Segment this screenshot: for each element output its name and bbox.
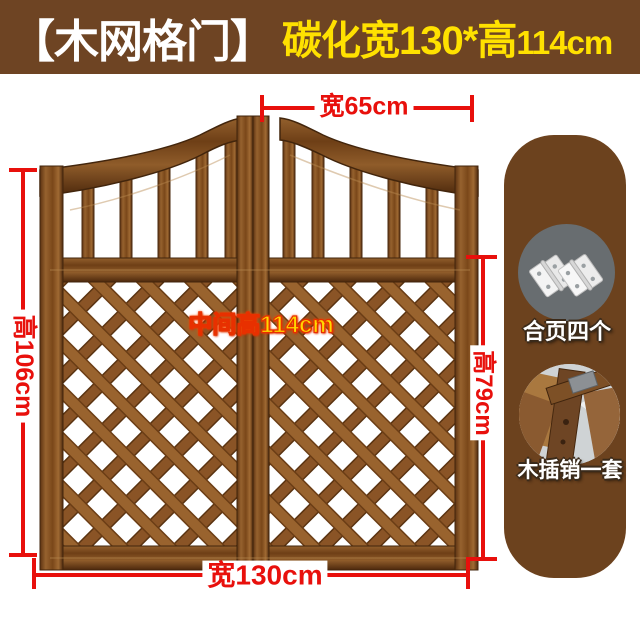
product-poster: 【木网格门】 碳化宽130*高114cm	[0, 0, 640, 640]
latch-photo-circle	[519, 364, 620, 465]
dimension-label-right-height: 高79cm	[470, 345, 496, 440]
banner: 【木网格门】 碳化宽130*高114cm	[0, 0, 640, 74]
banner-title: 【木网格门】	[10, 5, 274, 70]
latch-label: 木插销一套	[518, 454, 623, 484]
dimension-cap	[466, 557, 497, 561]
hinges-label: 合页四个	[523, 314, 611, 346]
dimension-label-center-height: 中间高114cm	[188, 305, 333, 340]
dimension-cap	[32, 558, 36, 589]
accessories-panel	[504, 135, 626, 578]
hinges-icon	[518, 224, 615, 321]
dimension-cap	[260, 95, 264, 122]
banner-subtitle-size: 114cm	[516, 24, 612, 61]
dimension-label-door-width: 宽65cm	[315, 93, 414, 121]
gate-center-post	[237, 116, 269, 570]
banner-subtitle-main: 碳化宽130*高	[282, 19, 516, 63]
hinges-photo-circle	[518, 224, 615, 321]
dimension-cap	[466, 255, 497, 259]
gate-product-photo	[30, 110, 492, 578]
banner-subtitle: 碳化宽130*高114cm	[282, 8, 612, 66]
wooden-latch-icon	[519, 364, 620, 465]
gate-left-stile	[40, 166, 63, 570]
dimension-cap	[9, 553, 37, 557]
dimension-cap	[9, 168, 37, 172]
dimension-cap	[466, 558, 470, 589]
dimension-label-total-width: 宽130cm	[202, 561, 327, 592]
dimension-cap	[470, 95, 474, 122]
dimension-label-left-height: 高106cm	[9, 310, 37, 423]
